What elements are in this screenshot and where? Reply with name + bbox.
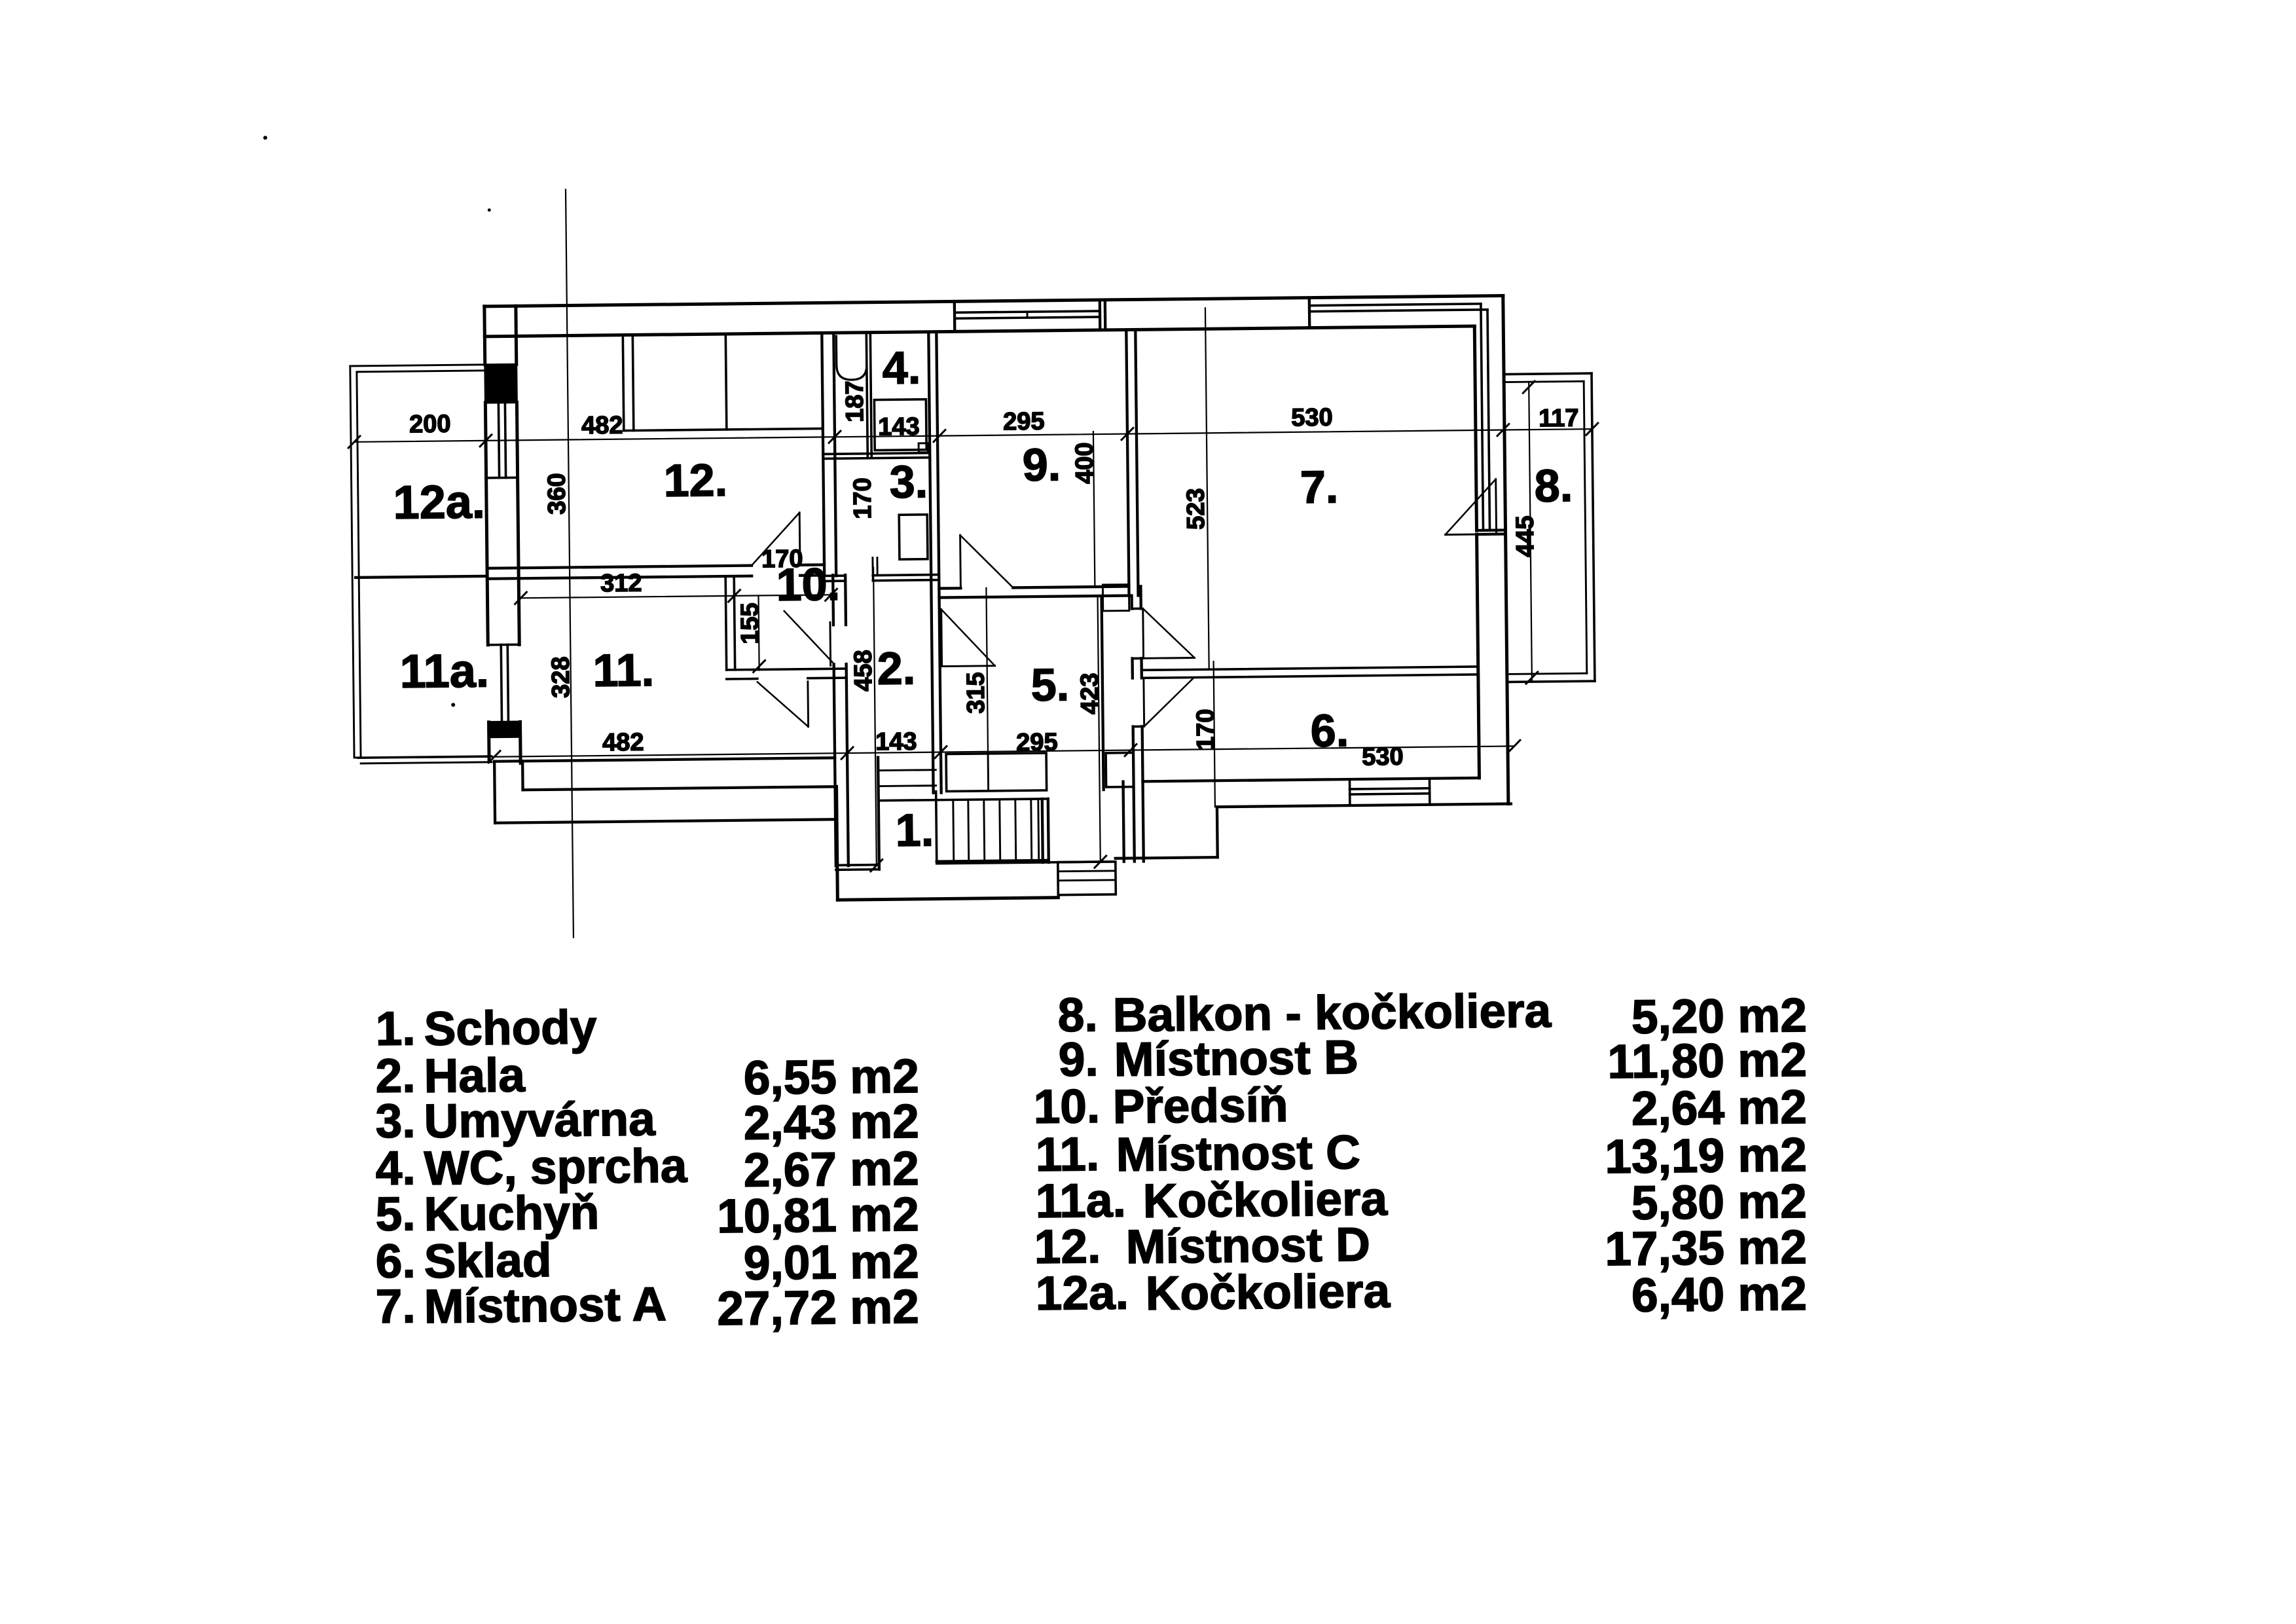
svg-text:423: 423 (1076, 673, 1104, 714)
svg-text:Schody: Schody (424, 1001, 597, 1056)
svg-text:12a.: 12a. (393, 476, 485, 529)
svg-text:12a.: 12a. (1035, 1266, 1129, 1320)
svg-text:143: 143 (878, 413, 920, 441)
svg-text:Předsíň: Předsíň (1112, 1079, 1288, 1134)
svg-text:3.: 3. (889, 456, 928, 507)
svg-text:2,43 m2: 2,43 m2 (743, 1095, 919, 1150)
svg-text:170: 170 (1192, 709, 1220, 750)
svg-text:1.: 1. (375, 1002, 416, 1056)
svg-text:3.: 3. (375, 1094, 416, 1148)
svg-text:Kuchyň: Kuchyň (424, 1186, 600, 1241)
svg-text:360: 360 (543, 473, 572, 515)
svg-text:2,64 m2: 2,64 m2 (1631, 1080, 1807, 1135)
svg-text:187: 187 (841, 380, 869, 422)
svg-text:400: 400 (1071, 442, 1099, 484)
svg-text:11.: 11. (592, 644, 654, 696)
svg-text:295: 295 (1016, 729, 1058, 757)
svg-text:445: 445 (1512, 515, 1540, 557)
svg-text:117: 117 (1539, 405, 1579, 433)
svg-text:8.: 8. (1534, 460, 1573, 511)
svg-text:2.: 2. (877, 642, 915, 694)
svg-text:155: 155 (737, 602, 765, 644)
svg-text:6,40 m2: 6,40 m2 (1631, 1267, 1808, 1322)
svg-text:328: 328 (547, 656, 575, 698)
svg-text:7.: 7. (1300, 461, 1338, 513)
svg-text:12.: 12. (1034, 1220, 1101, 1274)
svg-text:312: 312 (600, 570, 642, 598)
svg-text:12.: 12. (663, 454, 727, 506)
svg-text:5.: 5. (375, 1187, 416, 1241)
svg-text:170: 170 (849, 477, 877, 519)
svg-text:9.: 9. (1022, 439, 1061, 490)
svg-text:170: 170 (761, 545, 803, 574)
svg-text:7.: 7. (375, 1280, 416, 1333)
svg-text:143: 143 (875, 728, 917, 756)
svg-text:200: 200 (409, 411, 451, 439)
svg-text:523: 523 (1182, 488, 1211, 530)
svg-text:530: 530 (1362, 743, 1404, 771)
svg-text:482: 482 (581, 412, 623, 440)
svg-text:Místnost A: Místnost A (424, 1278, 666, 1333)
svg-text:10.: 10. (1033, 1080, 1100, 1134)
svg-text:315: 315 (962, 672, 991, 714)
svg-text:Kočkoliera: Kočkoliera (1145, 1264, 1391, 1320)
svg-text:530: 530 (1291, 404, 1333, 432)
svg-text:4.: 4. (882, 342, 920, 394)
svg-text:1.: 1. (895, 804, 934, 856)
svg-text:482: 482 (602, 729, 644, 757)
svg-text:11a.: 11a. (399, 645, 489, 698)
svg-text:295: 295 (1003, 408, 1045, 436)
svg-text:5.: 5. (1030, 659, 1069, 710)
svg-text:458: 458 (850, 650, 878, 692)
svg-text:9.: 9. (1058, 1033, 1099, 1086)
svg-text:11.: 11. (1035, 1128, 1099, 1181)
svg-text:27,72 m2: 27,72 m2 (717, 1280, 919, 1335)
svg-text:Místnost B: Místnost B (1114, 1031, 1358, 1086)
